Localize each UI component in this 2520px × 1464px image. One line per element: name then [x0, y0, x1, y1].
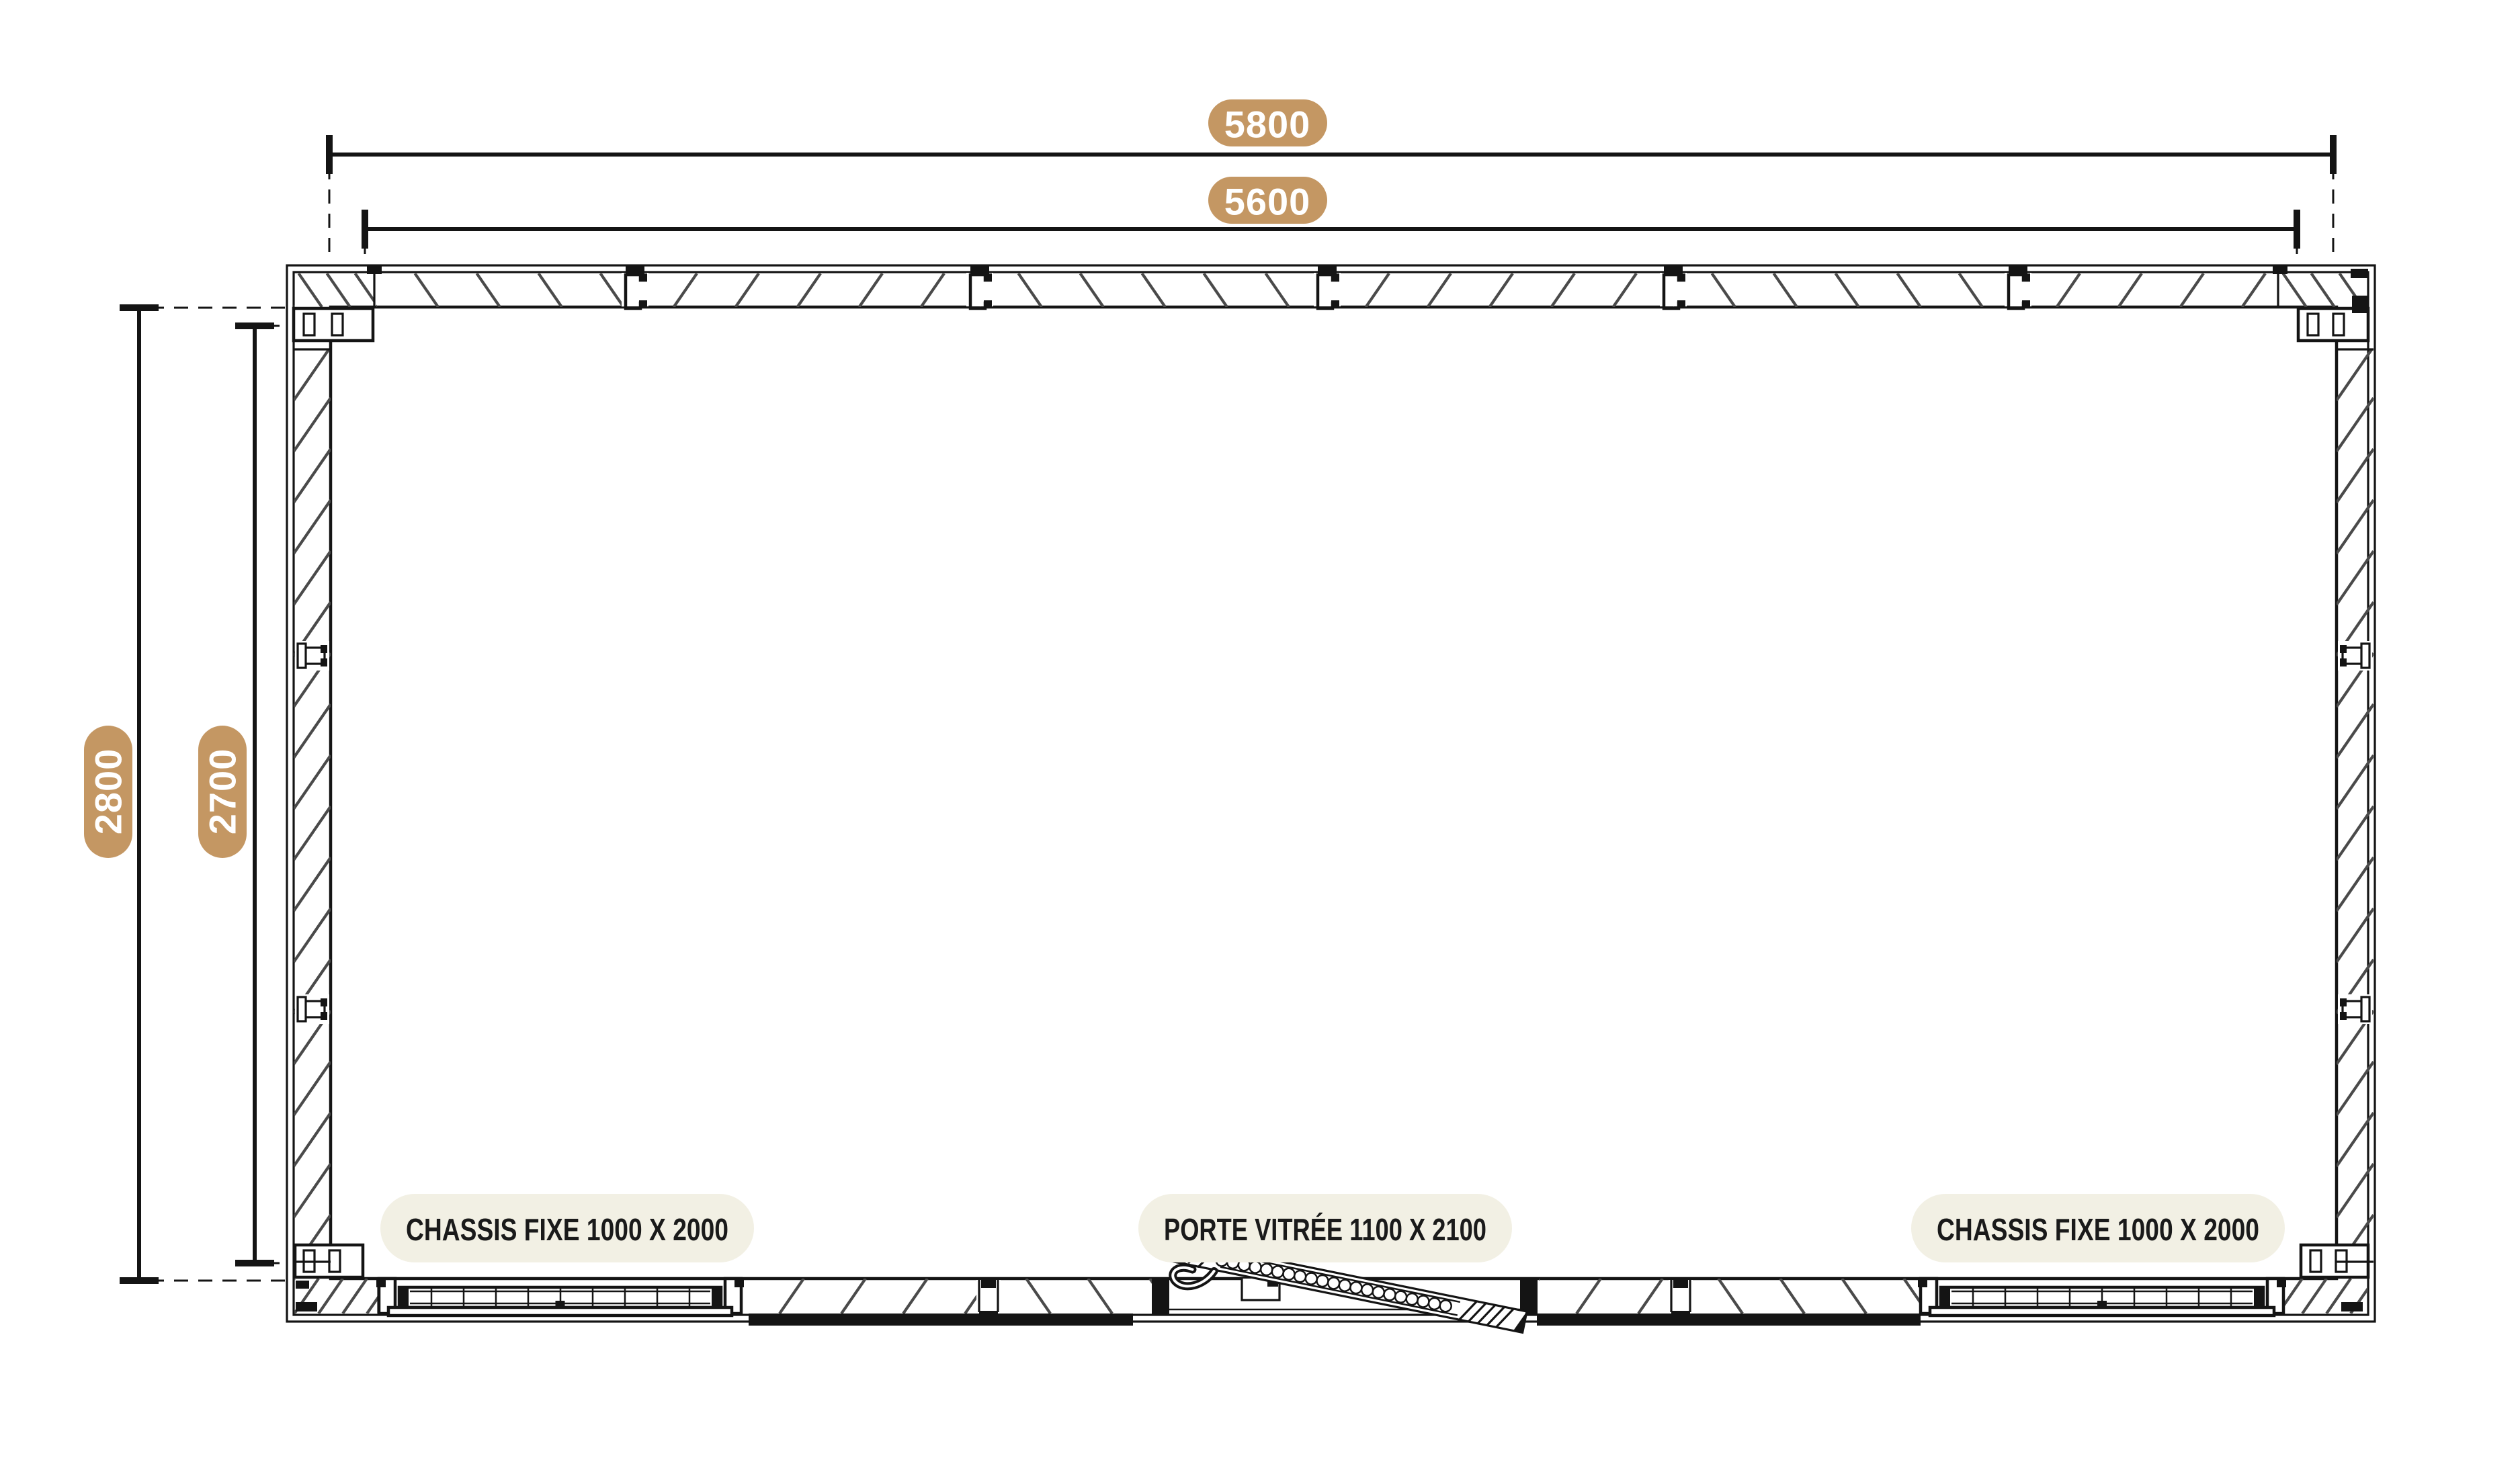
wall-hatching — [270, 273, 2375, 1314]
dim-badge-5600-value: 5600 — [1224, 181, 1311, 223]
dimension-width-inner — [362, 210, 2300, 262]
panel-joint-top — [2005, 266, 2031, 308]
panel-joint-bottom — [1669, 1279, 1693, 1319]
dim-badge-5600: 5600 — [1208, 177, 1327, 224]
label-window-right: CHASSIS FIXE 1000 X 2000 — [1911, 1194, 2285, 1262]
fixed-window — [376, 1279, 744, 1316]
floor-plan-sheet: 5800 5600 2800 2700 CHASSIS FIXE 1000 X … — [0, 0, 2520, 1464]
panel-joint-right — [2338, 641, 2372, 671]
panel-joint-left — [295, 994, 329, 1024]
dim-badge-2800: 2800 — [84, 726, 132, 858]
label-door-text: PORTE VITRÉE 1100 X 2100 — [1164, 1212, 1486, 1247]
panel-joint-bottom — [976, 1279, 1001, 1319]
panel-joint-top — [1660, 266, 1687, 308]
panel-joint-top — [622, 266, 648, 308]
dim-badge-2700-value: 2700 — [202, 748, 244, 835]
label-door: PORTE VITRÉE 1100 X 2100 — [1138, 1194, 1512, 1262]
panel-joint-left — [295, 641, 329, 671]
label-window-left: CHASSIS FIXE 1000 X 2000 — [380, 1194, 754, 1262]
panel-joints — [295, 266, 2372, 1319]
dim-badge-5800: 5800 — [1208, 99, 1327, 146]
dim-badge-2800-value: 2800 — [87, 748, 130, 835]
panel-joint-top — [1314, 266, 1341, 308]
label-window-left-text: CHASSIS FIXE 1000 X 2000 — [406, 1212, 728, 1247]
dimension-width-outer — [326, 135, 2337, 262]
building-outline — [287, 265, 2375, 1322]
panel-joint-right — [2338, 994, 2372, 1024]
label-window-right-text: CHASSIS FIXE 1000 X 2000 — [1937, 1212, 2259, 1247]
dim-badge-2700: 2700 — [198, 726, 247, 858]
dim-badge-5800-value: 5800 — [1224, 103, 1311, 146]
panel-joint-top — [966, 266, 993, 308]
fixed-window — [1918, 1279, 2286, 1316]
door-jamb-right — [1520, 1277, 1538, 1315]
corner-post-top-left — [294, 266, 382, 349]
door-jamb-left — [1152, 1277, 1169, 1315]
